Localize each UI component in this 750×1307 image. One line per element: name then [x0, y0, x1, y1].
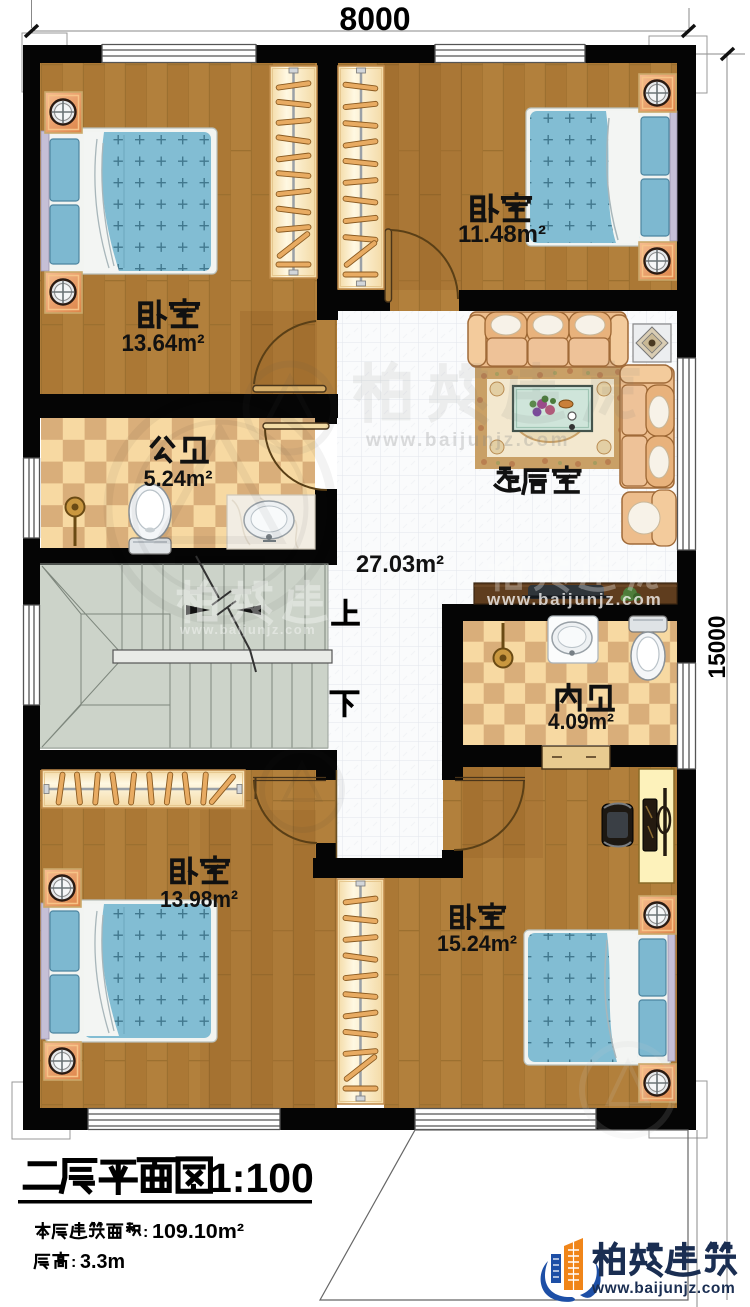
- svg-text:13.98m²: 13.98m²: [160, 886, 238, 912]
- svg-text:www.baijunjz.com: www.baijunjz.com: [591, 1280, 735, 1297]
- svg-text:13.64m²: 13.64m²: [122, 330, 205, 357]
- svg-text:27.03m²: 27.03m²: [356, 551, 444, 578]
- svg-text:109.10m²: 109.10m²: [152, 1221, 244, 1243]
- svg-text:15.24m²: 15.24m²: [437, 931, 517, 956]
- svg-text:15000: 15000: [704, 616, 731, 679]
- svg-text:4.09m²: 4.09m²: [548, 709, 614, 734]
- svg-text:www.baijunjz.com: www.baijunjz.com: [365, 430, 570, 451]
- svg-text:3.3m: 3.3m: [80, 1251, 125, 1273]
- svg-text::: :: [143, 1224, 148, 1241]
- svg-text:11.48m²: 11.48m²: [458, 221, 546, 248]
- svg-text::: :: [71, 1254, 76, 1271]
- svg-text:5.24m²: 5.24m²: [144, 466, 213, 491]
- svg-text:1:100: 1:100: [209, 1155, 314, 1201]
- svg-text:www.baijunjz.com: www.baijunjz.com: [486, 590, 663, 609]
- svg-text:8000: 8000: [339, 1, 410, 37]
- svg-text:www.baijunjz.com: www.baijunjz.com: [179, 622, 316, 637]
